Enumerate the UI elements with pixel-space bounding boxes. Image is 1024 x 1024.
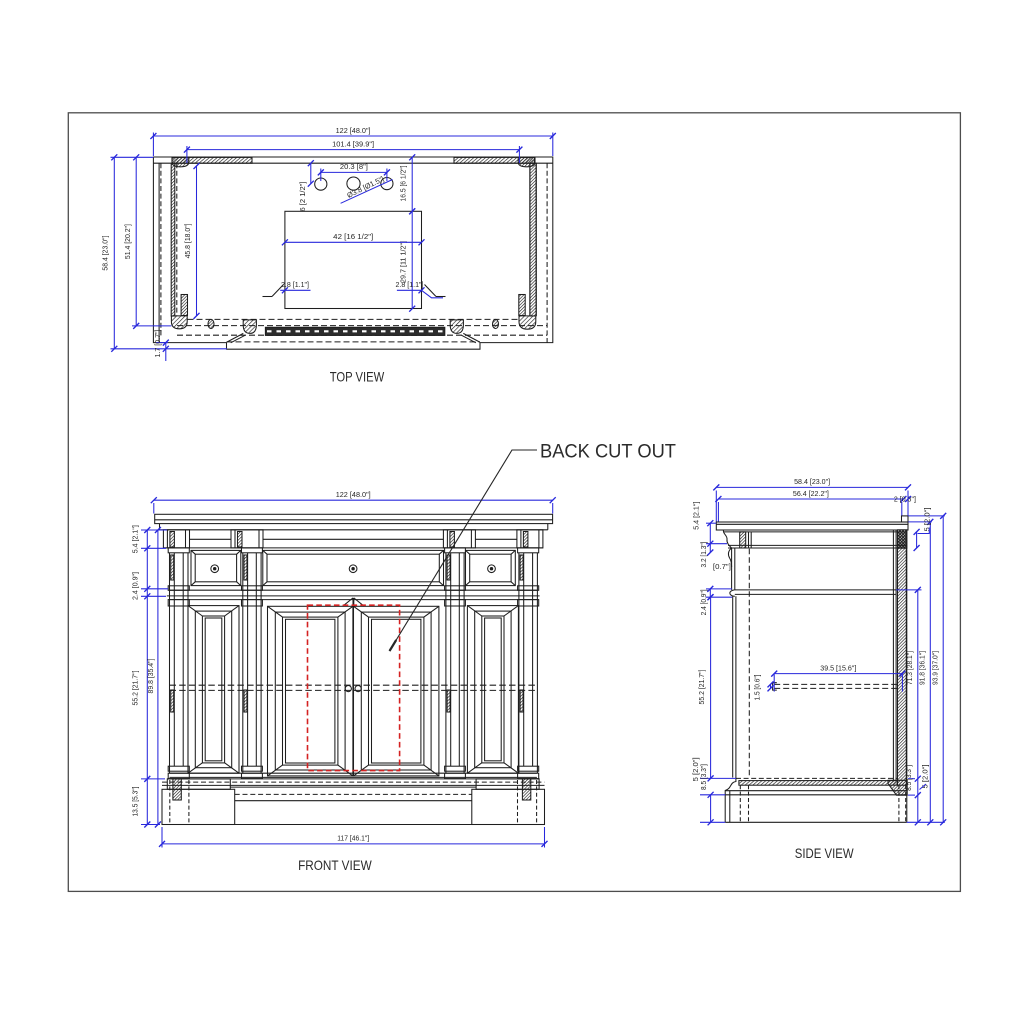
svg-text:5 [2.0"]: 5 [2.0"] (922, 764, 929, 788)
svg-text:122 [48.0"]: 122 [48.0"] (336, 490, 371, 499)
svg-text:[0.7"]: [0.7"] (713, 564, 731, 571)
svg-text:91.8 [36.1"]: 91.8 [36.1"] (918, 651, 927, 685)
svg-text:3.2 [1.3"]: 3.2 [1.3"] (701, 541, 708, 567)
svg-text:5 [2.0"]: 5 [2.0"] (924, 507, 931, 531)
svg-text:FRONT VIEW: FRONT VIEW (298, 857, 372, 873)
svg-text:2.8 [1.1"]: 2.8 [1.1"] (281, 280, 309, 289)
svg-text:BACK CUT OUT: BACK CUT OUT (540, 441, 676, 463)
svg-text:55.2 [21.7"]: 55.2 [21.7"] (131, 671, 140, 706)
svg-text:51.4 [20.2"]: 51.4 [20.2"] (123, 224, 132, 259)
svg-text:16.5 [6 1/2"]: 16.5 [6 1/2"] (399, 166, 408, 202)
svg-text:71.3 [28.1"]: 71.3 [28.1"] (905, 651, 914, 685)
svg-text:8.5 [3.3"]: 8.5 [3.3"] (906, 765, 913, 791)
svg-text:5.4 [2.1"]: 5.4 [2.1"] (692, 502, 701, 530)
svg-text:20.3 [8"]: 20.3 [8"] (340, 162, 368, 171)
svg-text:SIDE VIEW: SIDE VIEW (795, 845, 854, 861)
svg-text:13.5 [5.3"]: 13.5 [5.3"] (131, 787, 140, 817)
svg-text:122 [48.0"]: 122 [48.0"] (336, 126, 371, 135)
svg-text:89.8 [35.4"]: 89.8 [35.4"] (146, 659, 155, 694)
svg-text:5.4 [2.1"]: 5.4 [2.1"] (131, 525, 140, 553)
svg-text:117 [46.1"]: 117 [46.1"] (337, 834, 369, 843)
svg-text:45.8 [18.0"]: 45.8 [18.0"] (183, 223, 192, 258)
svg-text:2.4 [0.9"]: 2.4 [0.9"] (701, 589, 708, 615)
svg-text:6 [2 1/2"]: 6 [2 1/2"] (298, 182, 307, 212)
svg-text:58.4 [23.0"]: 58.4 [23.0"] (794, 477, 830, 486)
svg-text:1.5 [0.6"]: 1.5 [0.6"] (754, 674, 761, 700)
svg-text:58.4 [23.0"]: 58.4 [23.0"] (101, 236, 110, 271)
svg-text:39.5 [15.6"]: 39.5 [15.6"] (820, 663, 856, 672)
svg-text:93.9 [37.0"]: 93.9 [37.0"] (930, 651, 939, 685)
svg-text:8.5 [3.3"]: 8.5 [3.3"] (701, 764, 708, 790)
svg-text:2.8 [1.1"]: 2.8 [1.1"] (396, 280, 424, 289)
svg-text:101.4 [39.9"]: 101.4 [39.9"] (332, 139, 374, 148)
svg-text:42 [16 1/2"]: 42 [16 1/2"] (333, 232, 373, 241)
svg-text:2.4 [0.9"]: 2.4 [0.9"] (131, 572, 140, 600)
svg-text:5 [2.0"]: 5 [2.0"] (693, 757, 700, 781)
svg-text:29.7 [11 1/2"]: 29.7 [11 1/2"] (399, 241, 408, 283)
svg-text:55.2 [21.7"]: 55.2 [21.7"] (697, 670, 706, 705)
svg-text:1.7 [0.7"]: 1.7 [0.7"] (153, 330, 162, 358)
svg-text:2 [0.8"]: 2 [0.8"] (894, 495, 916, 504)
svg-text:TOP VIEW: TOP VIEW (330, 368, 385, 384)
svg-text:56.4 [22.2"]: 56.4 [22.2"] (793, 489, 829, 498)
